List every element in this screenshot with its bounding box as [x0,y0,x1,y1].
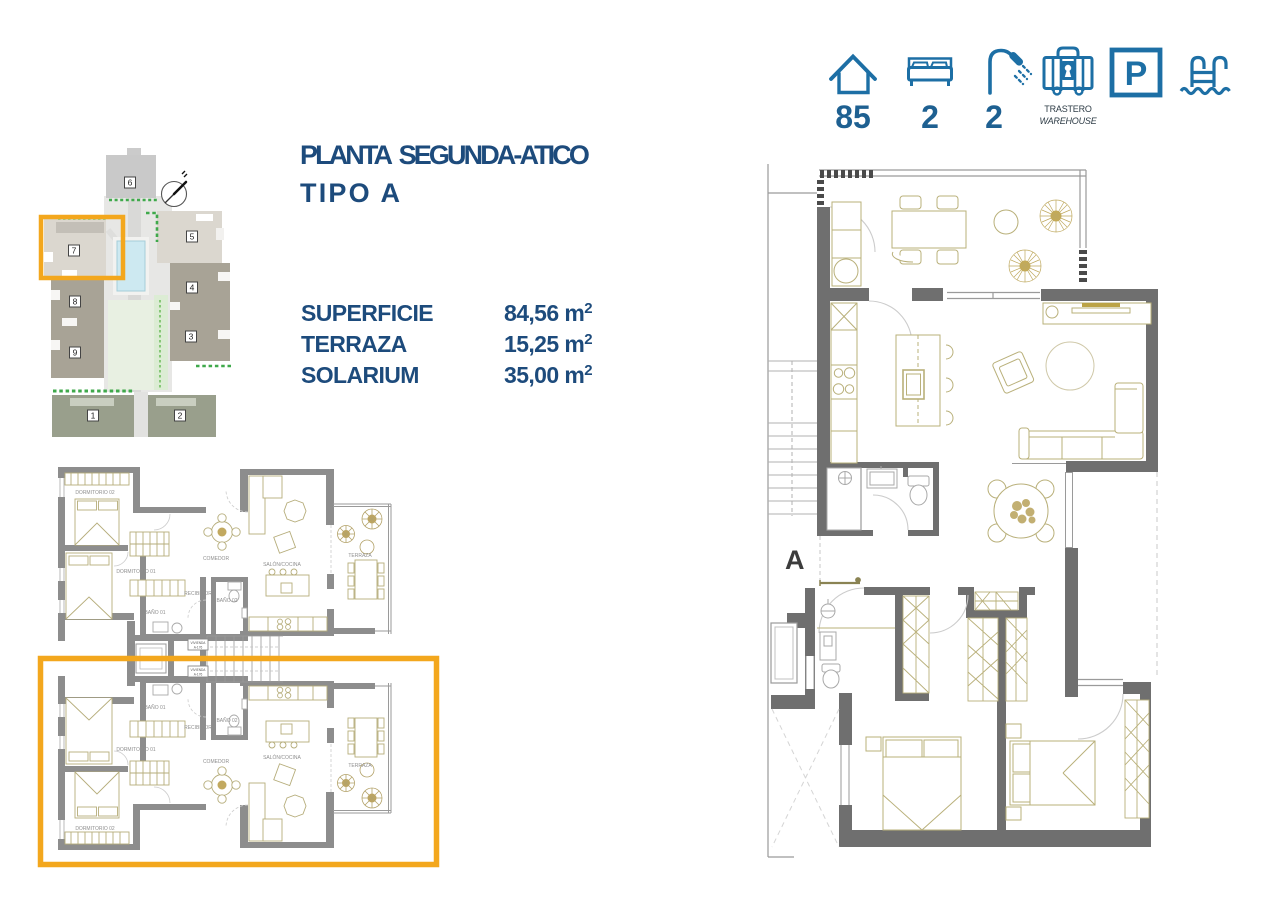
svg-text:WAREHOUSE: WAREHOUSE [1039,116,1097,126]
svg-text:SALÓN/COCINA: SALÓN/COCINA [263,561,301,568]
svg-text:BAÑO 01: BAÑO 01 [144,704,165,711]
svg-text:5: 5 [190,232,195,242]
svg-text:A-176: A-176 [194,646,203,650]
svg-text:TIPO A: TIPO A [300,178,402,208]
svg-text:A-176: A-176 [194,673,203,677]
svg-text:DORMITORIO 02: DORMITORIO 02 [75,490,115,496]
svg-text:BAÑO 02: BAÑO 02 [216,597,237,604]
svg-text:DORMITORIO 01: DORMITORIO 01 [116,747,156,753]
svg-text:2: 2 [985,99,1003,135]
svg-text:2: 2 [921,99,939,135]
svg-text:1: 1 [91,411,96,421]
svg-text:2: 2 [178,411,183,421]
svg-text:TERRAZA: TERRAZA [301,331,407,357]
svg-text:COMEDOR: COMEDOR [203,759,230,765]
svg-text:RECIBIDOR: RECIBIDOR [184,725,212,731]
svg-text:VIVIENDA: VIVIENDA [191,668,207,672]
svg-text:35,00 m2: 35,00 m2 [504,362,592,388]
svg-text:COMEDOR: COMEDOR [203,556,230,562]
svg-text:A: A [785,545,805,575]
svg-text:SOLARIUM: SOLARIUM [301,362,419,388]
svg-text:RECIBIDOR: RECIBIDOR [184,591,212,597]
svg-text:DORMITORIO 01: DORMITORIO 01 [116,569,156,575]
svg-text:TERRAZA: TERRAZA [348,763,372,769]
svg-text:BAÑO 01: BAÑO 01 [144,609,165,616]
svg-text:85: 85 [835,99,871,135]
svg-text:VIVIENDA: VIVIENDA [191,641,207,645]
svg-text:SUPERFICIE: SUPERFICIE [301,300,433,326]
svg-text:3: 3 [189,332,194,342]
svg-text:TERRAZA: TERRAZA [348,553,372,559]
svg-text:BAÑO 02: BAÑO 02 [216,717,237,724]
svg-text:7: 7 [72,246,77,256]
svg-text:P: P [1125,55,1148,93]
svg-text:9: 9 [73,348,78,358]
svg-text:DORMITORIO 02: DORMITORIO 02 [75,826,115,832]
svg-text:TRASTERO: TRASTERO [1044,104,1092,114]
svg-text:PLANTA SEGUNDA-ATICO: PLANTA SEGUNDA-ATICO [300,140,589,170]
svg-text:6: 6 [128,178,133,188]
svg-text:4: 4 [190,283,195,293]
svg-text:15,25 m2: 15,25 m2 [504,331,592,357]
svg-text:SALÓN/COCINA: SALÓN/COCINA [263,754,301,761]
svg-text:84,56 m2: 84,56 m2 [504,300,592,326]
svg-text:8: 8 [73,297,78,307]
